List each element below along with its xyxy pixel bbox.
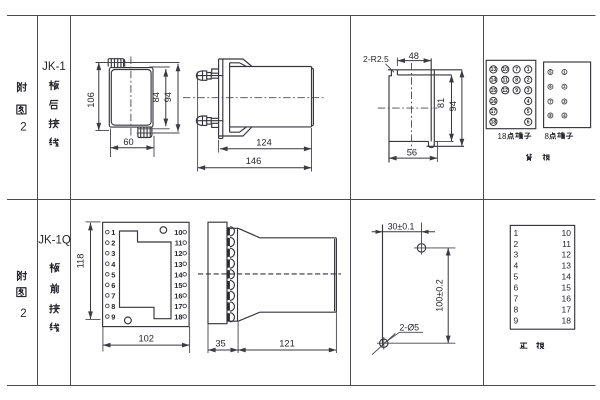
svg-text:2: 2 <box>20 122 26 134</box>
svg-text:60: 60 <box>123 137 133 147</box>
svg-text:18: 18 <box>491 120 497 126</box>
svg-text:121: 121 <box>279 338 295 348</box>
svg-text:10: 10 <box>502 67 508 73</box>
svg-text:84: 84 <box>151 92 161 102</box>
svg-text:8: 8 <box>514 305 519 315</box>
svg-text:16: 16 <box>491 99 497 105</box>
svg-text:13: 13 <box>491 67 497 73</box>
svg-text:146: 146 <box>246 156 262 166</box>
svg-text:JK-1: JK-1 <box>42 61 66 73</box>
svg-text:17: 17 <box>174 302 182 311</box>
svg-text:JK-1Q: JK-1Q <box>38 235 71 247</box>
svg-text:2: 2 <box>20 308 26 320</box>
svg-text:8: 8 <box>545 132 550 141</box>
svg-text:9: 9 <box>514 316 519 326</box>
svg-text:11: 11 <box>562 239 571 249</box>
svg-text:12: 12 <box>174 249 182 258</box>
svg-text:1: 1 <box>514 228 519 238</box>
svg-text:4: 4 <box>527 99 530 105</box>
svg-text:94: 94 <box>163 92 173 102</box>
svg-text:5: 5 <box>527 109 530 115</box>
svg-text:5: 5 <box>514 272 519 282</box>
svg-text:10: 10 <box>174 228 182 237</box>
svg-text:2-R2.5: 2-R2.5 <box>363 54 389 64</box>
svg-text:8: 8 <box>515 78 518 84</box>
svg-text:7: 7 <box>111 291 115 300</box>
svg-text:18: 18 <box>562 316 572 326</box>
svg-text:15: 15 <box>562 283 572 293</box>
svg-text:14: 14 <box>174 270 183 279</box>
svg-text:8: 8 <box>111 302 115 311</box>
svg-text:18: 18 <box>498 132 507 141</box>
svg-text:1: 1 <box>111 228 115 237</box>
svg-text:13: 13 <box>562 261 572 271</box>
svg-text:3: 3 <box>527 88 530 94</box>
svg-text:5: 5 <box>111 270 115 279</box>
svg-text:124: 124 <box>256 137 272 147</box>
svg-text:56: 56 <box>407 147 417 157</box>
svg-text:17: 17 <box>491 109 497 115</box>
svg-text:2: 2 <box>514 239 519 249</box>
svg-text:17: 17 <box>562 305 572 315</box>
svg-text:2: 2 <box>527 78 530 84</box>
svg-text:3: 3 <box>111 249 115 258</box>
svg-text:16: 16 <box>174 291 182 300</box>
svg-text:14: 14 <box>562 272 572 282</box>
svg-text:118: 118 <box>76 254 86 269</box>
svg-text:102: 102 <box>138 333 154 343</box>
svg-text:4: 4 <box>514 261 519 271</box>
svg-text:10: 10 <box>562 228 572 238</box>
svg-text:11: 11 <box>503 78 509 84</box>
svg-text:6: 6 <box>514 283 519 293</box>
svg-text:15: 15 <box>174 281 182 290</box>
svg-text:94: 94 <box>448 101 458 111</box>
svg-text:13: 13 <box>174 260 182 269</box>
svg-text:6: 6 <box>527 120 530 126</box>
svg-text:15: 15 <box>491 88 497 94</box>
svg-text:2-Ø5: 2-Ø5 <box>400 323 420 333</box>
svg-text:9: 9 <box>111 313 115 322</box>
svg-text:9: 9 <box>515 88 518 94</box>
svg-text:30±0.1: 30±0.1 <box>388 221 415 231</box>
svg-text:18: 18 <box>174 313 182 322</box>
svg-text:12: 12 <box>502 88 508 94</box>
svg-text:1: 1 <box>527 67 530 73</box>
svg-text:7: 7 <box>515 67 518 73</box>
svg-text:35: 35 <box>215 338 225 348</box>
svg-text:48: 48 <box>409 51 419 61</box>
svg-text:14: 14 <box>491 78 497 84</box>
svg-text:12: 12 <box>562 250 572 260</box>
svg-text:81: 81 <box>436 98 446 108</box>
svg-text:2: 2 <box>111 239 115 248</box>
svg-text:106: 106 <box>86 92 96 108</box>
svg-text:100±0.2: 100±0.2 <box>435 279 445 311</box>
svg-text:3: 3 <box>514 250 519 260</box>
svg-text:7: 7 <box>514 294 519 304</box>
svg-text:6: 6 <box>111 281 115 290</box>
svg-text:11: 11 <box>175 239 183 248</box>
svg-text:16: 16 <box>562 294 572 304</box>
